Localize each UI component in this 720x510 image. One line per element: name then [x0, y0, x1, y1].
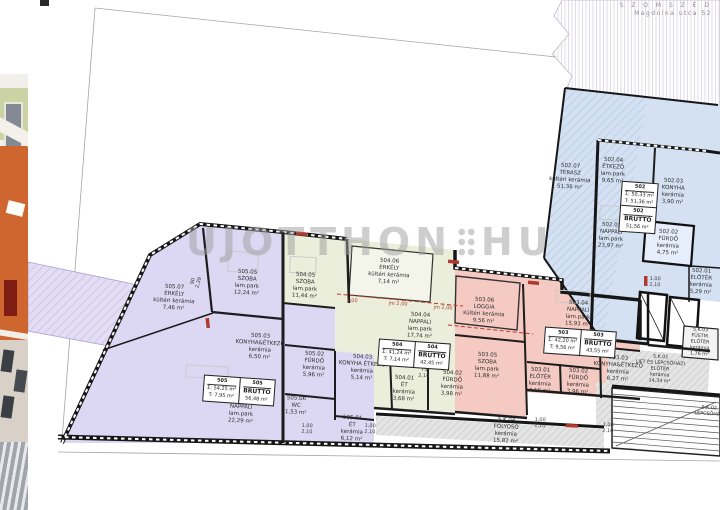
area-table-504-gross: 504 BRUTTÓ 42,45 m²: [413, 342, 449, 369]
photo-dark-window: [4, 280, 17, 316]
area-table-503: 503 Σ: 42,20 m² T: 9,56 m² 503 BRUTTÓ 43…: [543, 327, 616, 359]
dim-label: 1,00 2,10: [649, 276, 661, 289]
photo-louvers: [0, 442, 28, 510]
area-table-504: 504 Σ: 41,24 m² T: 7,14 m² 504 BRUTTÓ 42…: [377, 339, 450, 371]
area-table-504-net: 504 Σ: 41,24 m² T: 7,14 m²: [378, 340, 415, 367]
dim-label: 1,00 2,10: [364, 423, 376, 436]
balcony-504: [349, 246, 433, 302]
dim-label: 1,00 2,10: [301, 423, 313, 436]
neighbor-address: Magdolna utca 52: [540, 10, 712, 17]
dim-label-red: jm 2,00: [388, 301, 407, 308]
area-table-503-gross: 503 BRUTTÓ 43,55 m²: [579, 330, 615, 357]
neighbor-label: S Z O M S Z É D Magdolna utca 52: [540, 2, 712, 17]
dim-label: 1,00 2,10: [534, 417, 546, 430]
area-table-503-net: 503 Σ: 42,20 m² T: 9,56 m²: [544, 328, 581, 355]
area-table-505-gross: 505 BRUTTÓ 56,48 m²: [238, 378, 274, 405]
area-table-505-net: 505 Σ: 54,25 m² T: 7,95 m²: [203, 376, 240, 403]
area-table-502-gross: 502 BRUTTÓ 51,56 m²: [619, 205, 656, 233]
neighbor-title: S Z O M S Z É D: [540, 2, 712, 9]
dim-label: 1,00 2,10: [602, 422, 614, 435]
area-table-502: 502 Σ: 50,33 m² T: 51,36 m² 502 BRUTTÓ 5…: [618, 181, 659, 234]
photo-facade-orange: [0, 146, 28, 346]
area-table-502-net: 502 Σ: 50,33 m² T: 51,36 m²: [621, 182, 658, 208]
floorplan-canvas: UJOTTHON HU S Z O M S Z É D Magdolna utc…: [0, 0, 720, 510]
edge-artifact: [40, 0, 49, 6]
dim-label-red: 1,00: [346, 298, 357, 305]
room-5k03-box: [682, 326, 718, 360]
area-table-505: 505 Σ: 54,25 m² T: 7,95 m² 505 BRUTTÓ 56…: [202, 375, 275, 407]
dim-label-red: jm 2,00: [433, 305, 452, 312]
photo-thumbnail[interactable]: [0, 74, 28, 510]
